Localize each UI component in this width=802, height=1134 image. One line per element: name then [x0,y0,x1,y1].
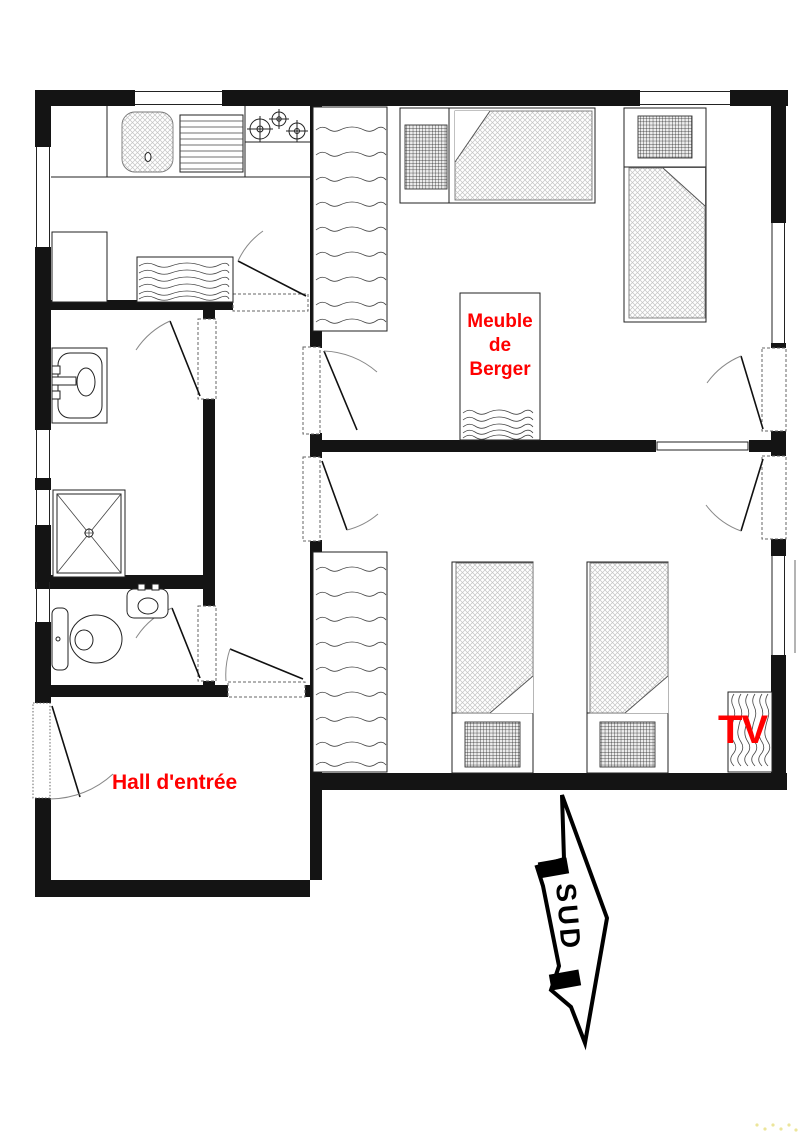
artifact-dots [755,1123,797,1131]
wardrobe [313,107,387,331]
single-bed-vertical [624,108,706,322]
room-label-hall: Hall d'entrée [112,771,237,795]
floor-plan: SUD Meuble de Berger Hall d'entrée TV [0,0,802,1134]
single-bed-horizontal [400,108,595,203]
bedroom1-door-frame [303,347,320,434]
wc-door-frame [198,606,216,681]
pillow [465,722,520,767]
hall-doorway [228,682,305,697]
washbasin [52,348,107,423]
refrigerator [52,232,107,302]
floor-plan-drawing: SUD [0,0,802,1134]
entrance-door-frame [33,703,50,798]
wc-basin [127,584,168,618]
meuble-label-line3: Berger [458,358,542,382]
stove-burners [247,109,308,142]
shower [53,490,125,577]
tv-label: TV [718,708,767,753]
pillow [638,116,692,158]
kitchen-sink [122,112,173,172]
bedroom-1 [313,107,706,440]
bedroom2-door-frame [303,457,320,541]
balcony-door1-frame [762,348,786,431]
wc [52,584,168,670]
kitchen [51,106,310,302]
meuble-label-line2: de [458,334,542,358]
sink-drain [145,153,151,162]
bedroom-2 [313,552,772,773]
room-label-meuble-de-berger: Meuble de Berger [458,310,542,382]
pillow [405,125,447,189]
toilet [52,608,122,670]
balcony-door2-frame [762,456,786,539]
single-bed-right [587,562,668,773]
drainboard [180,115,243,172]
sud-label: SUD [550,882,587,953]
meuble-label-line1: Meuble [458,310,542,334]
bathroom [52,348,125,577]
door-frames [33,294,786,798]
pillow [600,722,655,767]
south-arrow: SUD [537,795,607,1043]
bathroom-door-frame [198,319,216,399]
kitchen-passage [233,294,308,311]
single-bed-left [452,562,533,773]
partition-opening [657,442,748,450]
doormat [137,257,233,302]
wardrobe [313,552,387,772]
